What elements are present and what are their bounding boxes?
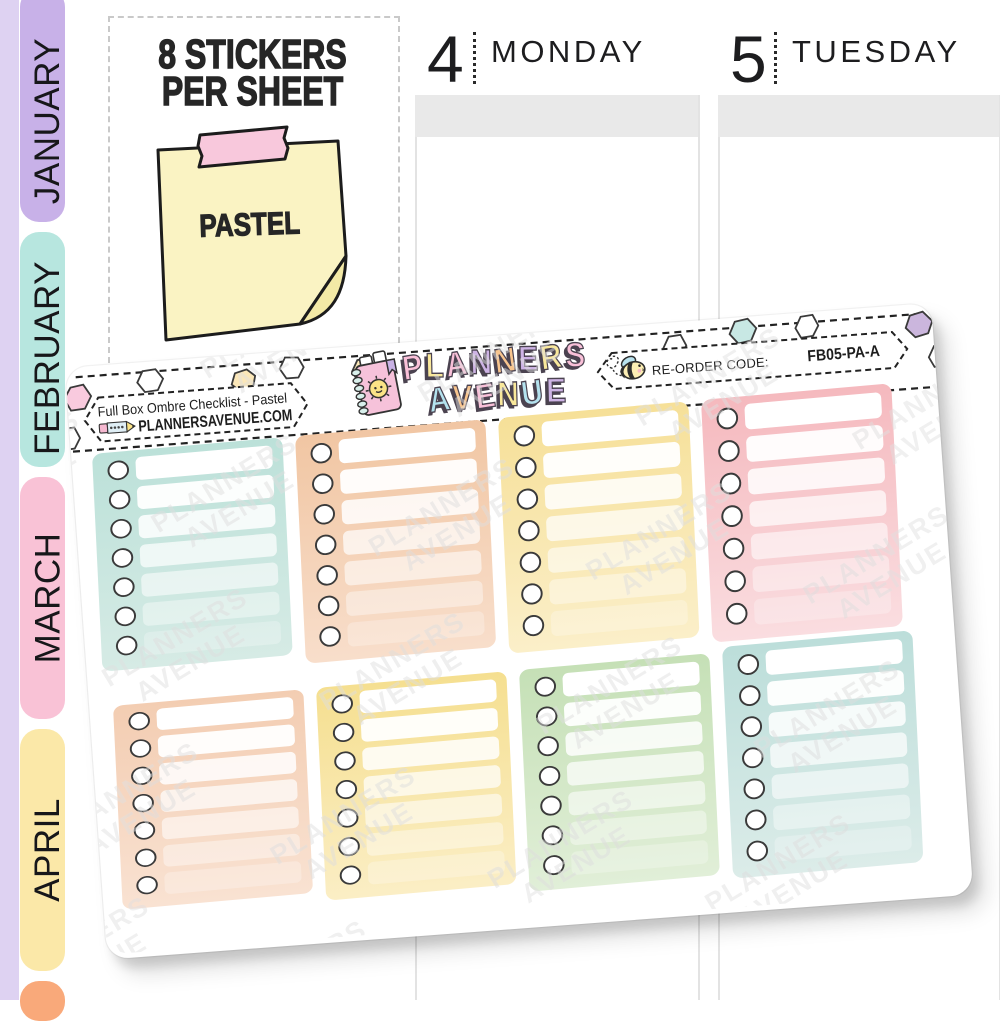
svg-text:PASTEL: PASTEL (199, 206, 301, 244)
